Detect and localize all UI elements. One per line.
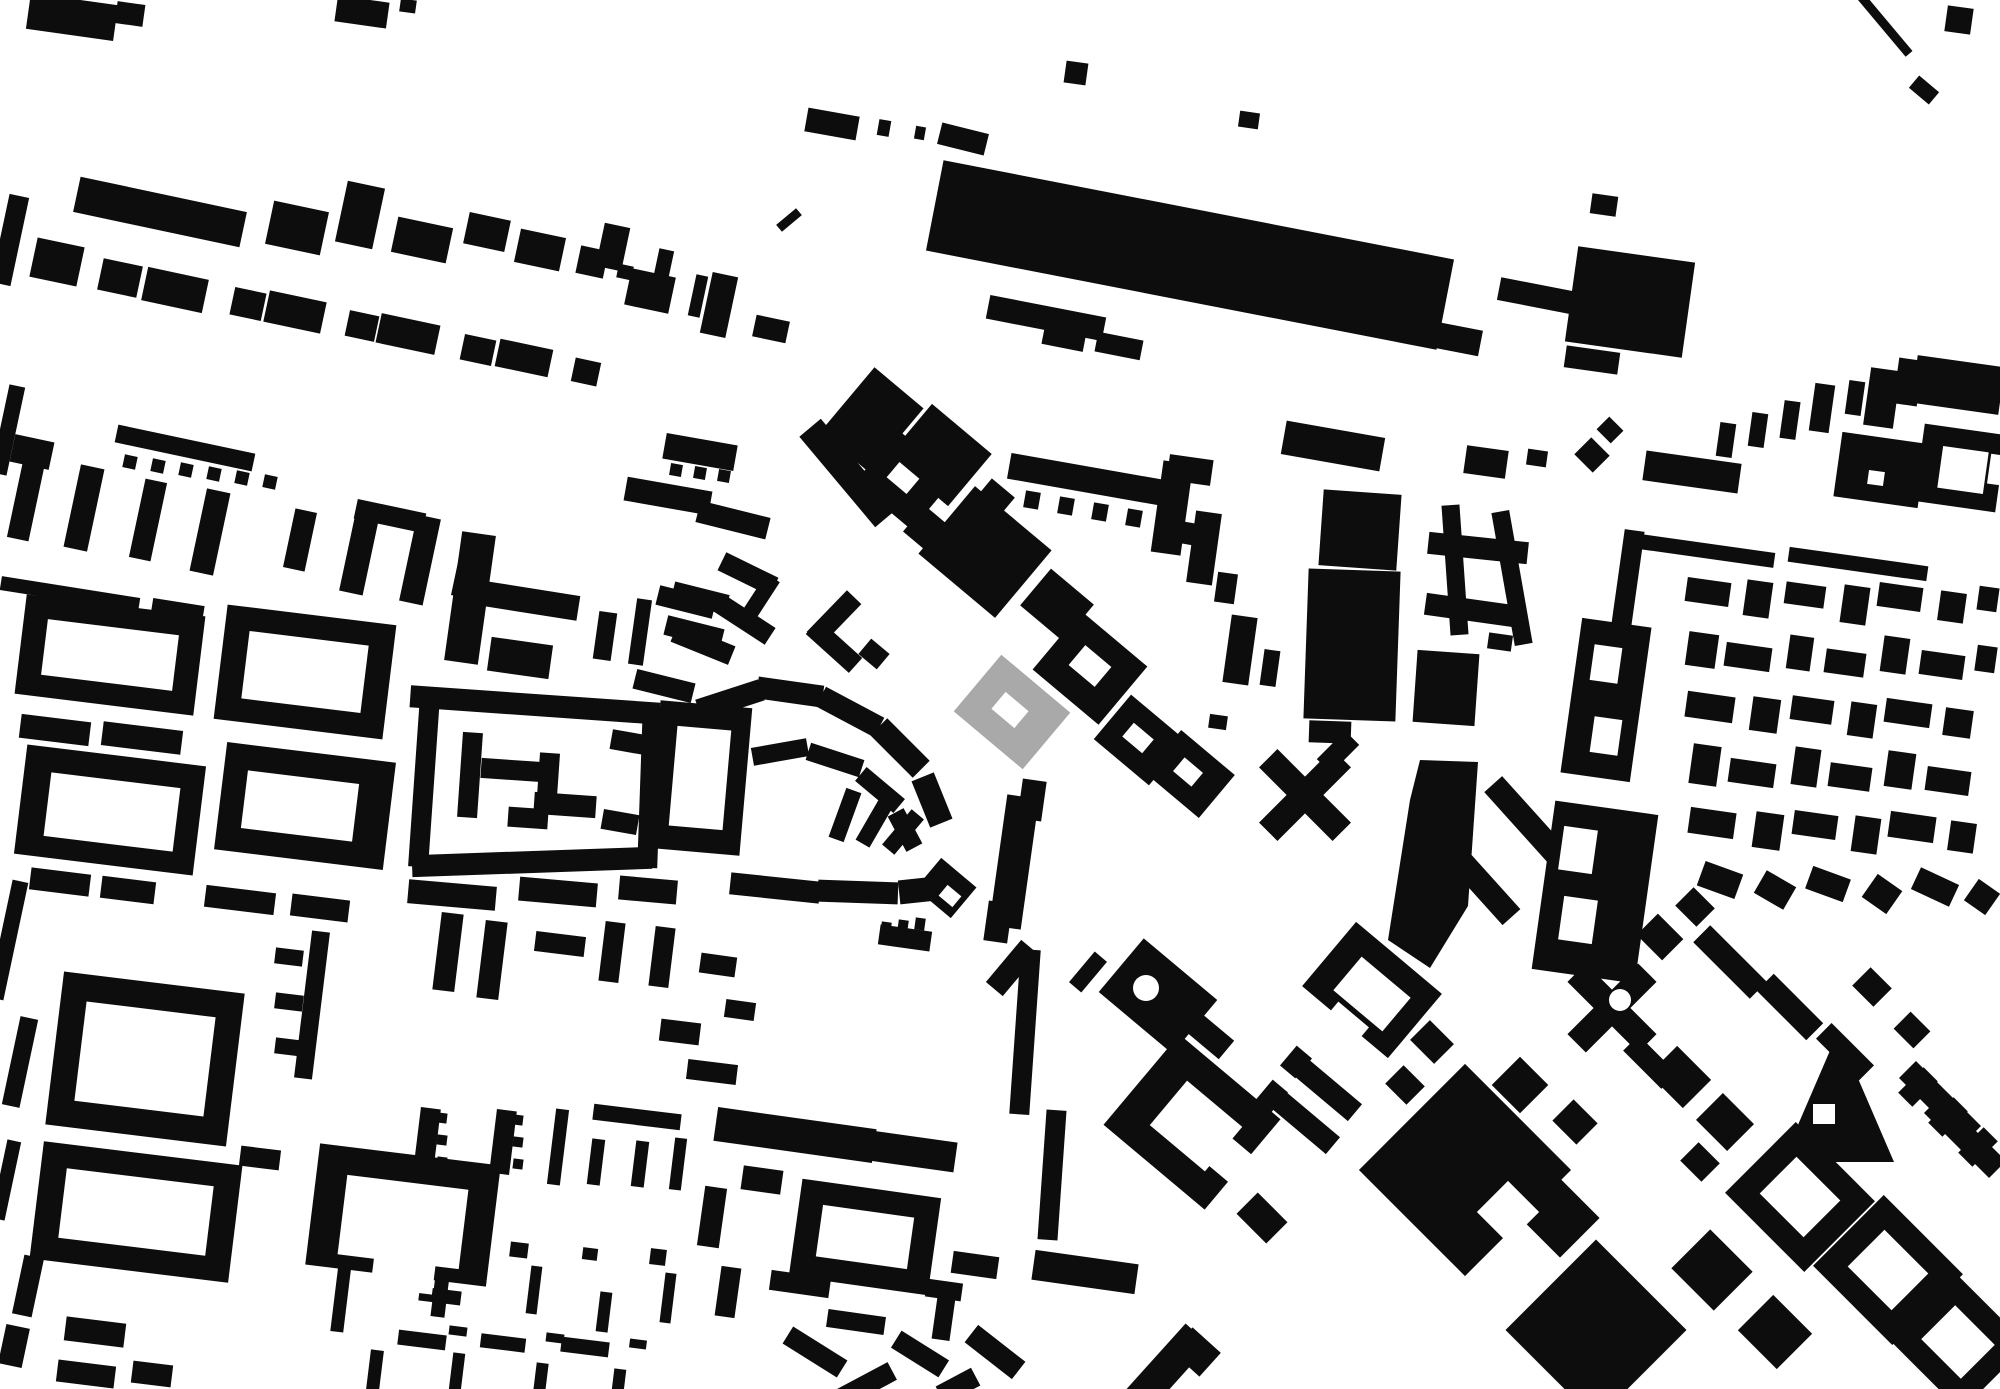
building-footprint: [1685, 631, 1719, 669]
building-footprint: [436, 1156, 447, 1167]
building-footprint: [1976, 586, 1999, 613]
building-footprint: [1057, 496, 1075, 515]
building-footprint: [178, 462, 193, 477]
building-footprint: [115, 1, 146, 27]
building-footprint: [717, 469, 731, 483]
building-footprint: [818, 880, 899, 905]
building-footprint: [122, 454, 137, 469]
building-footprint: [274, 992, 304, 1011]
building-footprint: [1752, 811, 1785, 851]
building-footprint: [1318, 489, 1401, 570]
arch-void: [1133, 975, 1159, 1001]
building-footprint: [1238, 111, 1260, 130]
building-footprint: [575, 245, 608, 278]
map-canvas: [0, 0, 2000, 1389]
building-footprint: [1023, 490, 1041, 509]
building-footprint: [1884, 750, 1917, 790]
city-figure-ground-map: [0, 0, 2000, 1389]
building-footprint: [1947, 820, 1977, 853]
building-footprint: [1064, 61, 1089, 86]
building-footprint: [1463, 445, 1508, 479]
building-footprint: [507, 807, 548, 830]
building-footprint: [274, 1037, 304, 1056]
building-footprint: [1125, 508, 1143, 527]
courtyard-void: [338, 1175, 469, 1269]
building-footprint: [1833, 432, 1926, 508]
courtyard-void: [241, 631, 368, 713]
building-footprint: [1880, 635, 1911, 674]
building-footprint: [1743, 579, 1774, 618]
building-footprint: [274, 947, 304, 966]
building-footprint: [436, 1112, 447, 1123]
building-footprint: [1786, 634, 1814, 671]
courtyard-void: [1813, 1104, 1835, 1124]
building-footprint: [1526, 449, 1548, 468]
building-footprint: [1839, 584, 1870, 625]
building-footprint: [206, 466, 221, 481]
building-footprint: [1942, 707, 1974, 739]
building-footprint: [1590, 193, 1619, 216]
building-footprint: [512, 1136, 523, 1147]
building-footprint: [436, 1134, 447, 1145]
courtyard-void: [1558, 896, 1598, 944]
building-footprint: [880, 921, 892, 934]
building-footprint: [897, 919, 909, 932]
building-footprint: [512, 1158, 523, 1169]
building-footprint: [1688, 743, 1721, 787]
building-footprint: [1974, 645, 1997, 674]
courtyard-void: [1590, 644, 1623, 684]
building-footprint: [618, 876, 678, 905]
building-footprint: [669, 463, 683, 477]
building-footprint: [1851, 815, 1882, 854]
courtyard-void: [1937, 446, 1988, 494]
building-footprint: [914, 917, 926, 930]
courtyard-void: [1867, 470, 1885, 486]
building-footprint: [399, 0, 417, 14]
building-footprint: [1413, 650, 1480, 726]
courtyard-void: [669, 726, 732, 830]
building-footprint: [512, 1114, 523, 1125]
building-footprint: [234, 470, 249, 485]
building-footprint: [1790, 746, 1821, 787]
building-footprint: [1749, 696, 1781, 734]
building-footprint: [1944, 5, 1973, 34]
courtyard-void: [74, 1001, 215, 1116]
building-footprint: [1091, 502, 1109, 521]
building-footprint: [1303, 568, 1400, 721]
building-footprint: [1847, 701, 1877, 738]
courtyard-void: [1590, 716, 1623, 756]
building-footprint: [898, 876, 946, 905]
building-footprint: [649, 1248, 667, 1266]
building-footprint: [1208, 714, 1228, 730]
arch-void: [1609, 989, 1631, 1011]
building-footprint: [582, 1247, 598, 1261]
building-footprint: [509, 1241, 529, 1258]
building-footprint: [1214, 572, 1238, 604]
building-footprint: [1487, 632, 1513, 651]
building-footprint: [262, 474, 277, 489]
courtyard-void: [1558, 826, 1598, 874]
building-footprint: [150, 458, 165, 473]
building-footprint: [1937, 590, 1967, 623]
building-footprint: [693, 466, 707, 480]
